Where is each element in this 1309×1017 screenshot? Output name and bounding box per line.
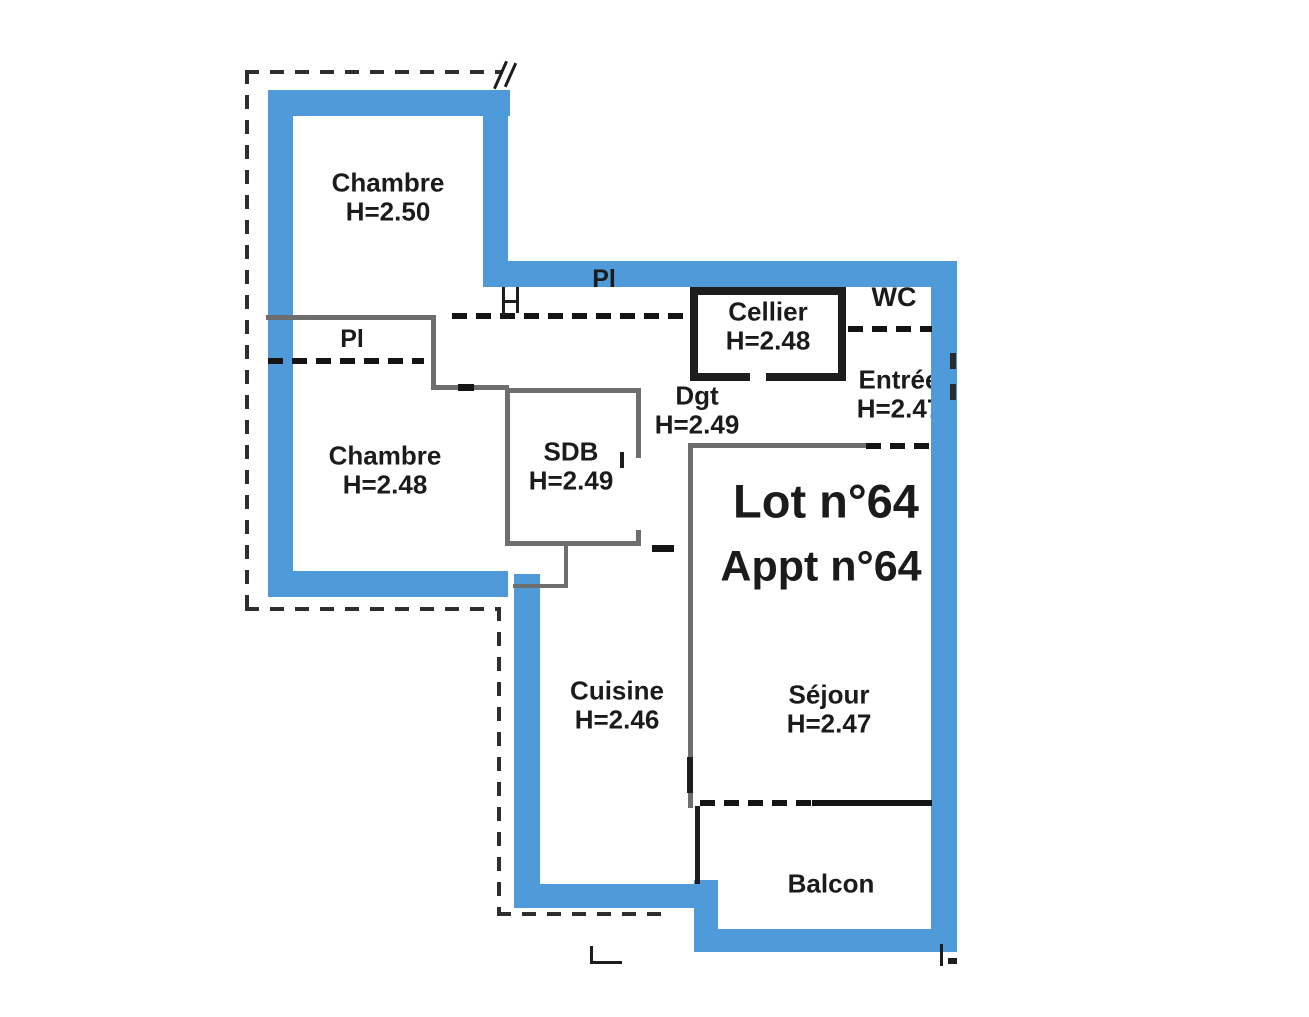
cellier-door-opening — [750, 371, 766, 383]
closet-text: Pl — [340, 325, 364, 353]
entree-door-icon — [950, 353, 956, 369]
room-name: WC — [872, 282, 917, 313]
interior-wall-sdb-step-v — [564, 546, 568, 588]
appt-number-title: Appt n°64 — [720, 543, 921, 592]
room-name: Balcon — [788, 869, 875, 898]
room-name: Chambre — [329, 442, 442, 471]
room-height: H=2.48 — [726, 327, 811, 356]
room-height: H=2.46 — [570, 706, 664, 735]
boundary-line-left — [245, 70, 249, 610]
exterior-wall-cuisine-left — [514, 574, 540, 908]
room-label-cellier: Cellier H=2.48 — [726, 298, 811, 357]
exterior-wall-cuisine-bottom — [514, 884, 697, 908]
door-line-corridor — [452, 313, 692, 319]
corner-tick-icon — [940, 944, 943, 966]
boundary-line-top — [245, 70, 503, 74]
interior-wall-balcon-connector — [695, 806, 700, 884]
window-line-balcon — [812, 800, 932, 806]
exterior-wall-chambre1-top — [268, 90, 510, 116]
corner-tick-icon — [948, 958, 957, 964]
room-name: Entrée — [857, 366, 942, 395]
door-line-closet — [268, 358, 424, 364]
sejour-door-hinge-icon — [687, 757, 693, 793]
room-height: H=2.47 — [787, 710, 872, 739]
interior-wall-sdb-step-h — [513, 584, 568, 588]
door-swing-icon — [502, 300, 519, 303]
room-name: Cuisine — [570, 677, 664, 706]
interior-wall-sejour-left — [688, 443, 693, 808]
room-name: SDB — [529, 438, 614, 467]
room-height: H=2.47 — [857, 395, 942, 424]
appt-text: Appt n°64 — [720, 543, 921, 592]
exterior-wall-balcon-bottom — [694, 929, 957, 952]
room-height: H=2.49 — [529, 467, 614, 496]
door-line-wc — [848, 326, 932, 332]
boundary-line-mid-vertical — [497, 607, 501, 915]
room-name: Chambre — [332, 169, 445, 198]
room-label-balcon: Balcon — [788, 869, 875, 898]
boundary-line-bottom-left — [245, 607, 500, 611]
room-name: Dgt — [655, 382, 740, 411]
corner-tick-icon — [590, 961, 622, 964]
boundary-line-bottom — [497, 912, 662, 916]
room-name: Séjour — [787, 681, 872, 710]
lot-number-title: Lot n°64 — [733, 474, 919, 527]
room-name: Cellier — [726, 298, 811, 327]
room-height: H=2.49 — [655, 411, 740, 440]
lot-text: Lot n°64 — [733, 474, 919, 527]
room-label-sdb: SDB H=2.49 — [529, 438, 614, 497]
exterior-wall-chambre1-right — [483, 90, 508, 287]
room-label-chambre-2: Chambre H=2.48 — [329, 442, 442, 501]
room-label-chambre-1: Chambre H=2.50 — [332, 169, 445, 228]
sdb-door-opening — [634, 458, 643, 530]
room-label-wc: WC — [872, 282, 917, 313]
interior-wall-chambre1-bottom — [266, 315, 436, 320]
door-threshold-sdb — [652, 545, 674, 552]
closet-text: Pl — [592, 265, 616, 293]
closet-label-corridor: Pl — [592, 265, 616, 293]
entree-door-icon — [950, 384, 956, 400]
door-threshold-chambre2 — [458, 384, 474, 391]
interior-wall-closet-right — [431, 315, 436, 389]
exterior-wall-chambre2-bottom — [268, 571, 508, 597]
exterior-wall-left — [268, 90, 293, 597]
room-label-sejour: Séjour H=2.47 — [787, 681, 872, 740]
room-label-cuisine: Cuisine H=2.46 — [570, 677, 664, 736]
room-label-entree: Entrée H=2.47 — [857, 366, 942, 425]
closet-label-chambre-2: Pl — [340, 325, 364, 353]
floor-plan: Chambre H=2.50 Pl Pl Chambre H=2.48 SDB … — [0, 0, 1309, 1017]
interior-wall-sejour-top — [688, 443, 870, 448]
room-label-dgt: Dgt H=2.49 — [655, 382, 740, 441]
door-line-entree — [866, 443, 932, 449]
room-height: H=2.50 — [332, 198, 445, 227]
sdb-door-hinge-icon — [620, 452, 624, 468]
room-height: H=2.48 — [329, 471, 442, 500]
